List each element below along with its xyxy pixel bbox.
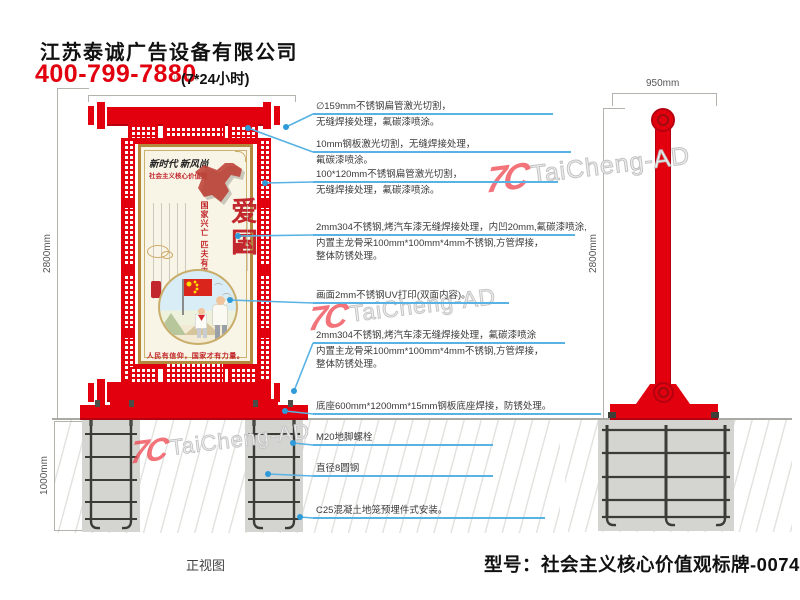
underground-dim-line <box>54 421 55 531</box>
side-anchor-tab-left <box>608 412 616 418</box>
callout-underline <box>313 413 601 415</box>
post-crossbar <box>121 198 135 208</box>
father-leg <box>215 325 220 339</box>
side-width-dim-line <box>612 93 716 94</box>
callout-steel-plate-10mm: 10mm钢板激光切割，无缝焊接处理， 氟碳漆喷涂。 <box>316 138 571 167</box>
front-top-dim-tick-left <box>88 95 89 102</box>
front-concrete-pier-right <box>245 419 303 532</box>
front-height-dim-line <box>57 88 58 419</box>
china-flag <box>184 279 212 296</box>
side-width-dim-tick-left <box>612 93 613 106</box>
front-height-dim-label: 2800mm <box>42 234 53 273</box>
technical-drawing-canvas: 江苏泰诚广告设备有限公司 400-799-7880 00mm (7*24小时) … <box>0 0 800 600</box>
side-anchor-tab-right <box>711 412 719 418</box>
post-crossbar <box>257 328 271 338</box>
cloud-motif-small <box>161 251 173 259</box>
side-height-dim-line <box>603 108 604 418</box>
front-concrete-pier-left <box>82 419 140 532</box>
anchor-bolt-nub <box>253 400 258 407</box>
front-top-dim-line <box>88 95 296 96</box>
front-top-beam-cap-right-outer <box>274 106 280 125</box>
anchor-bolt-nub <box>288 400 293 407</box>
girl-head <box>198 308 205 315</box>
girl-leg <box>203 328 207 338</box>
core-values-poster: 新时代 新风尚 社会主义核心价值观 国家兴亡 匹夫有责 爱国 <box>138 144 253 364</box>
front-top-beam-cap-right <box>263 102 271 129</box>
callout-anchor-bolt: M20地脚螺栓 <box>316 431 493 447</box>
front-top-dim-tick-right <box>295 95 296 102</box>
poster-oval-illustration <box>158 269 238 345</box>
side-joint-circle-ring <box>658 387 669 398</box>
callout-underline <box>313 181 558 183</box>
side-width-dim-tick-right <box>716 93 717 106</box>
callout-uv-print: 画面2mm不锈钢UV打印(双面内容)。 <box>316 289 509 305</box>
side-pole <box>655 112 671 392</box>
front-base-plate <box>80 405 308 420</box>
callout-underline <box>313 302 509 304</box>
side-concrete-pier <box>598 419 734 531</box>
poster-side-text-line <box>247 205 248 271</box>
post-crossbar <box>121 265 135 275</box>
side-pole-top-cap-ring <box>657 114 669 126</box>
father-head <box>216 296 225 305</box>
small-seal-stamp <box>235 243 243 251</box>
model-number: 型号：社会主义核心价值观标牌-0074 <box>484 551 800 577</box>
callout-underline <box>313 234 575 236</box>
callout-underline <box>313 151 571 153</box>
callout-base-plate: 底座600mm*1200mm*15mm钢板底座焊接，防锈处理。 <box>316 400 601 416</box>
father-leg <box>222 325 227 339</box>
callout-underline <box>313 342 565 344</box>
front-bottom-beam-cap-left-outer <box>88 383 94 402</box>
callout-underline <box>313 475 493 477</box>
hotline-hours: (7*24小时) <box>181 68 250 89</box>
callout-underline <box>313 444 493 446</box>
callout-cabinet-304-recessed: 2mm304不锈钢,烤汽车漆无缝焊接处理，内凹20mm,氟碳漆喷涂, 内置主龙骨… <box>316 221 587 263</box>
dove-icon <box>214 283 223 289</box>
front-side-post-left <box>121 138 135 383</box>
callout-flat-pipe-100x120: 100*120mm不锈钢扁管激光切割， 无缝焊接处理，氟碳漆喷涂。 <box>316 168 558 197</box>
front-view-label: 正视图 <box>186 555 225 574</box>
side-base-plate <box>610 404 718 420</box>
callout-cabinet-304: 2mm304不锈钢,烤汽车漆无缝焊接处理，氟碳漆喷涂 内置主龙骨采100mm*1… <box>316 329 565 371</box>
side-height-dim-tick <box>603 108 625 109</box>
callout-underline <box>313 517 545 519</box>
callout-underline <box>313 113 553 115</box>
side-width-dim-label: 950mm <box>646 78 679 89</box>
side-height-dim-label: 2800mm <box>588 234 599 273</box>
front-top-beam-cap-left-outer <box>88 106 94 125</box>
girl-leg <box>197 328 201 338</box>
underground-dim-label: 1000mm <box>39 456 50 495</box>
post-crossbar <box>121 328 135 338</box>
callout-concrete-cage: C25混凝土地笼预埋件式安装。 <box>316 504 545 520</box>
phone-number: 400-799-7880 <box>35 60 197 89</box>
poster-slogan: 人民有信仰，国家才有力量。 <box>141 351 250 361</box>
anchor-bolt-nub <box>95 400 100 407</box>
front-top-beam-cap-left <box>97 102 105 129</box>
callout-pipe-159: ∅159mm不锈钢扁管激光切割， 无缝焊接处理，氟碳漆喷涂。 <box>316 100 553 129</box>
callout-round-bar: 直径8圆钢 <box>316 462 493 478</box>
father-figure <box>212 304 228 326</box>
anchor-bolt-nub <box>129 400 134 407</box>
